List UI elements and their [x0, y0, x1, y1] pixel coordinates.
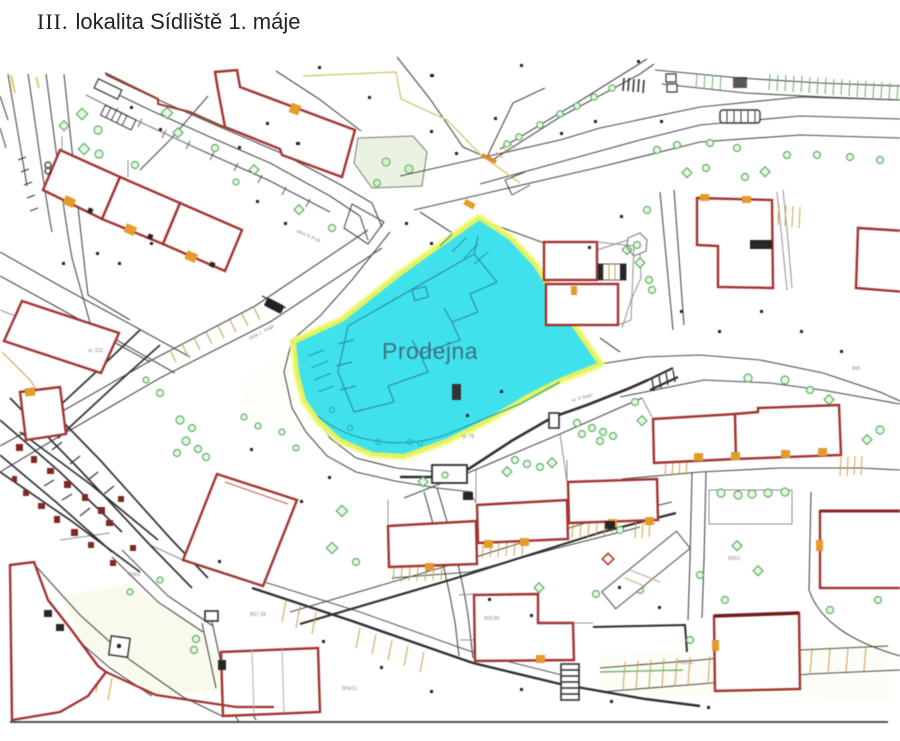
- svg-text:905/38: 905/38: [678, 660, 694, 666]
- svg-text:905: 905: [852, 366, 861, 372]
- svg-text:ul. K Babi: ul. K Babi: [571, 393, 593, 404]
- svg-text:st. 312: st. 312: [88, 348, 103, 354]
- svg-text:B67.38: B67.38: [250, 612, 266, 618]
- svg-text:905/1: 905/1: [728, 556, 741, 562]
- svg-text:st. 78: st. 78: [462, 434, 474, 440]
- svg-text:905/39: 905/39: [484, 616, 500, 622]
- svg-text:904/11: 904/11: [342, 686, 357, 692]
- svg-text:ulice K.H.M.: ulice K.H.M.: [295, 228, 322, 244]
- svg-text:Prodejna: Prodejna: [382, 338, 478, 364]
- svg-text:904/2: 904/2: [128, 572, 141, 578]
